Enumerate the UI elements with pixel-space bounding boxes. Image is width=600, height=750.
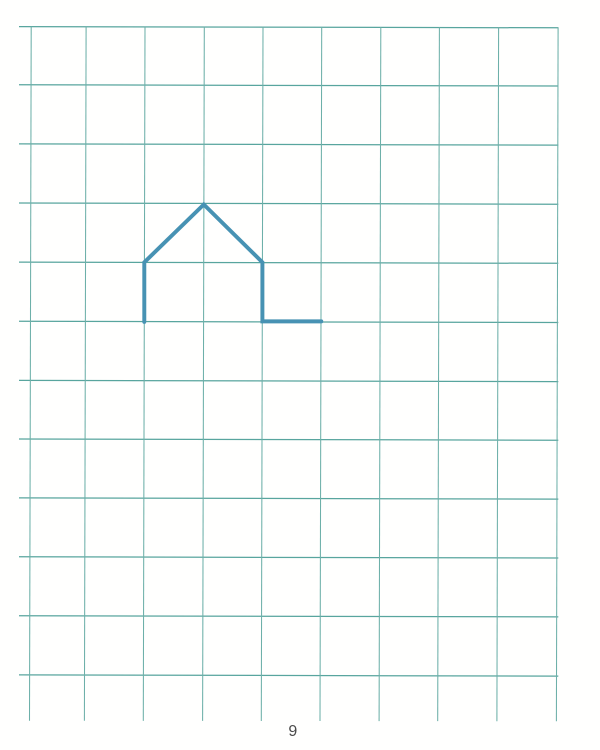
- svg-text:9: 9: [288, 723, 297, 740]
